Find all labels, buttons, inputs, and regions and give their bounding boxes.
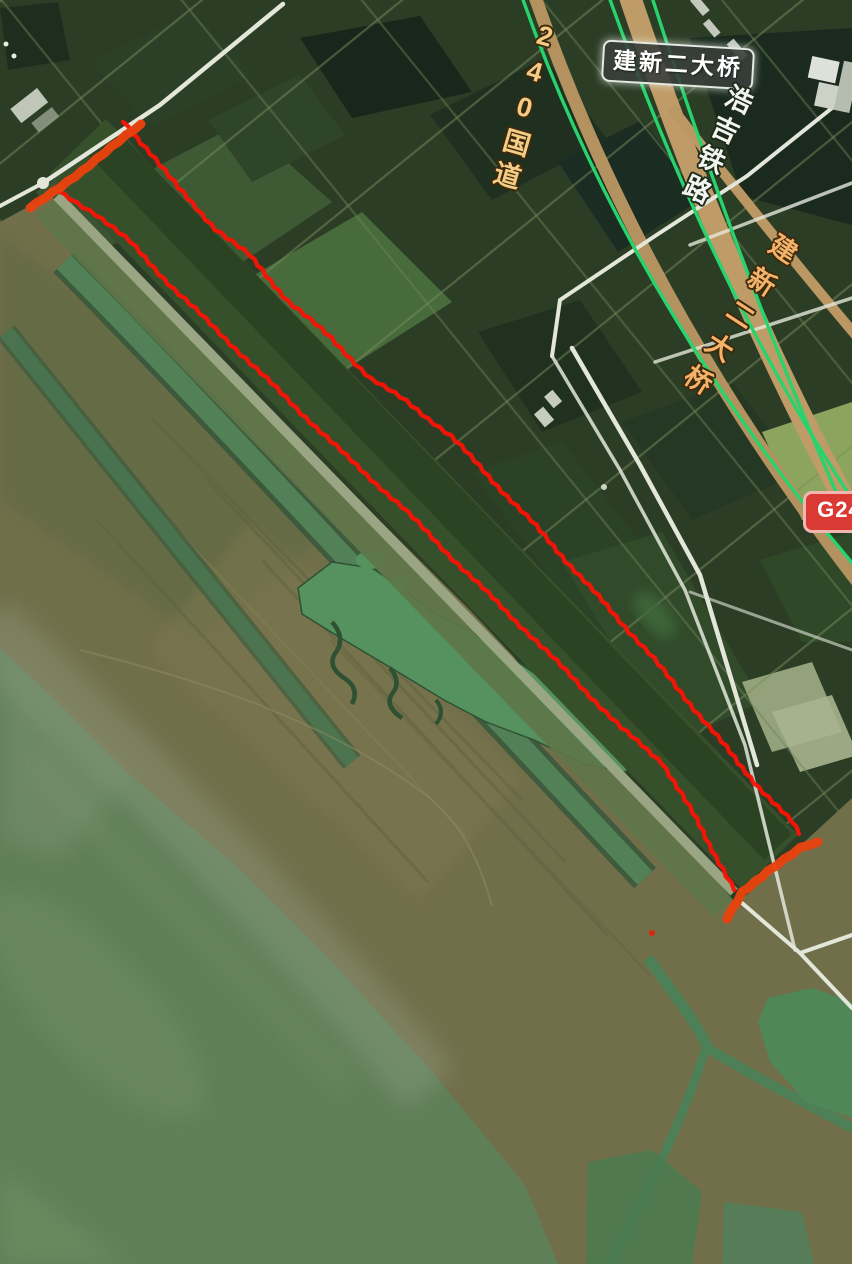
satellite-map[interactable]: 建新二大桥 240国道 浩吉铁路 建新二大桥 G240 [0, 0, 852, 1264]
satellite-imagery [0, 0, 852, 1264]
road-junction [37, 177, 49, 189]
